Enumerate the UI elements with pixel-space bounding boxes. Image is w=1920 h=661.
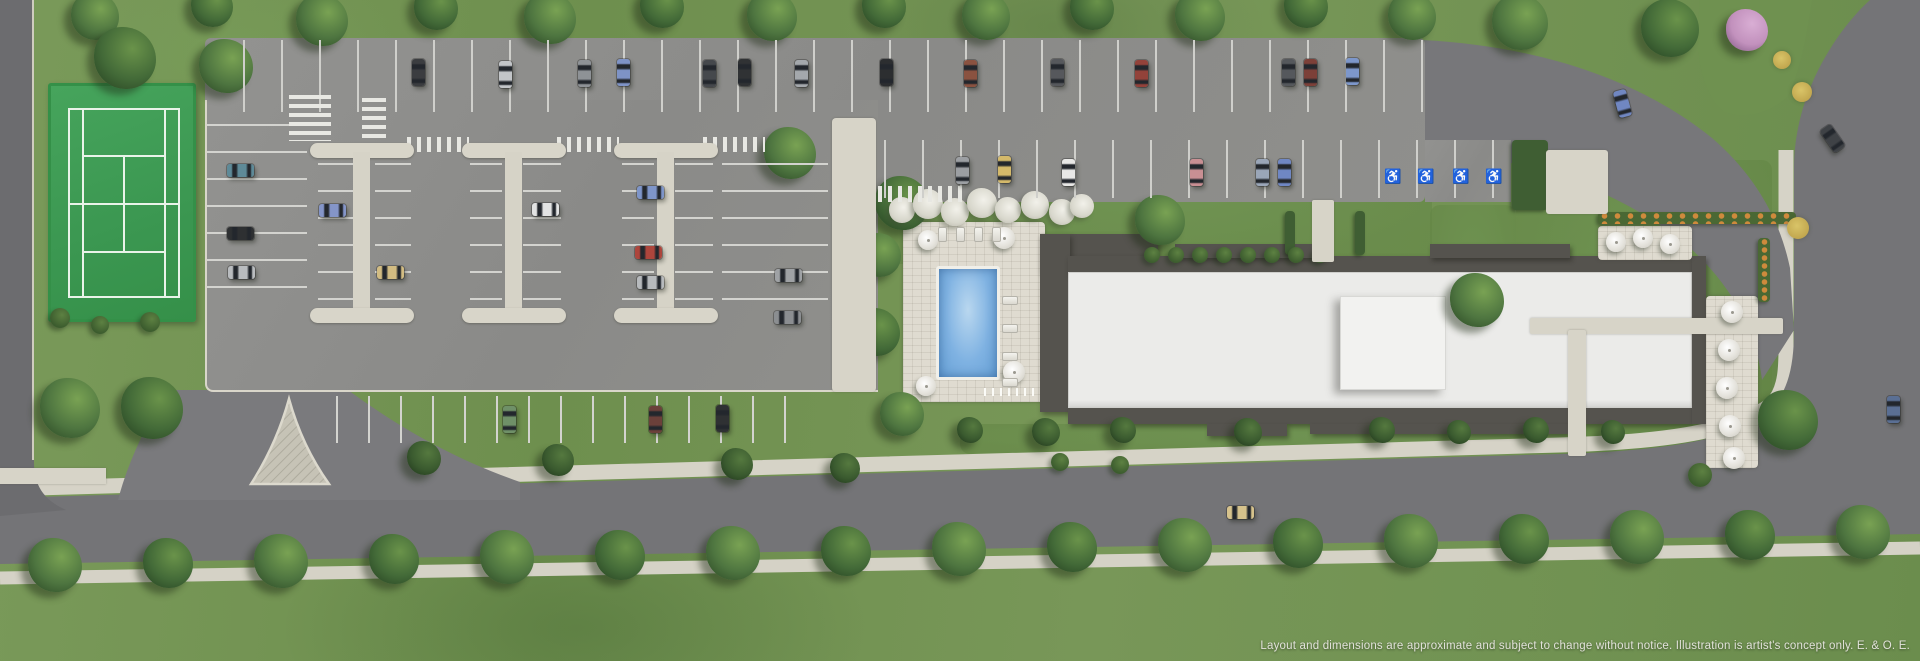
tree (962, 0, 1010, 40)
car (649, 406, 662, 433)
car (774, 311, 801, 324)
tree (480, 530, 534, 584)
parking-stall-lines (722, 163, 828, 309)
tree (1158, 518, 1212, 572)
pink-flowering-tree (1726, 9, 1768, 51)
car (880, 59, 893, 86)
tree (1447, 420, 1471, 444)
parking-island-stem (353, 152, 370, 310)
car (795, 60, 808, 87)
pool-lounger (1002, 324, 1018, 333)
tree (1047, 522, 1097, 572)
tree (191, 0, 233, 27)
car (1887, 396, 1900, 423)
white-flower-shrub (941, 198, 969, 226)
tree (721, 448, 753, 480)
bush (1216, 247, 1232, 263)
car (1135, 60, 1148, 87)
pool-lounger (938, 227, 947, 242)
patio-umbrella (1606, 232, 1626, 252)
pool-lounger (1002, 378, 1018, 387)
tree (254, 534, 308, 588)
tree (94, 27, 156, 89)
car (1282, 59, 1295, 86)
bush (1288, 247, 1304, 263)
tree (1284, 0, 1328, 28)
pool-lounger (992, 227, 1001, 242)
car (1051, 59, 1064, 86)
pool-lounger (1002, 296, 1018, 305)
car (1304, 59, 1317, 86)
pool-lounger (956, 227, 965, 242)
tree (1499, 514, 1549, 564)
handicap-parking-icon: ♿ (1384, 169, 1398, 183)
sprites-layer: ♿♿♿♿ (0, 0, 1920, 661)
patio-umbrella (1718, 339, 1740, 361)
tree (880, 392, 924, 436)
patio-umbrella (1723, 447, 1745, 469)
car (1819, 123, 1845, 153)
bush (1051, 453, 1069, 471)
tree (542, 444, 574, 476)
parking-stall-lines (470, 163, 502, 309)
car (412, 59, 425, 86)
tree (121, 377, 183, 439)
patio-umbrella (916, 376, 936, 396)
pool-lounger (1002, 352, 1018, 361)
car (532, 203, 559, 216)
car (964, 60, 977, 87)
crosswalk (557, 137, 619, 152)
tree (1523, 417, 1549, 443)
bush (91, 316, 109, 334)
bush (1688, 463, 1712, 487)
yellow-flower-bed (1773, 51, 1791, 69)
bush (1240, 247, 1256, 263)
car (1278, 159, 1291, 186)
patio-umbrella (1719, 415, 1741, 437)
disclaimer-text: Layout and dimensions are approximate an… (1260, 640, 1910, 652)
car (319, 204, 346, 217)
patio-umbrella (1633, 228, 1653, 248)
walkway (832, 118, 876, 392)
parking-island-cap (310, 308, 414, 323)
parking-stall-lines (675, 163, 713, 309)
tree (1641, 0, 1699, 57)
tree (640, 0, 684, 28)
tree (1175, 0, 1225, 41)
walkway (0, 468, 106, 484)
bush (1111, 456, 1129, 474)
parking-island-cap (462, 308, 566, 323)
car (228, 266, 255, 279)
patio-umbrella (1721, 301, 1743, 323)
tree (747, 0, 797, 41)
tree (1369, 417, 1395, 443)
parking-stall-lines (318, 163, 356, 309)
crosswalk (289, 95, 331, 141)
crosswalk (407, 137, 469, 152)
car (1256, 159, 1269, 186)
walkway (1312, 200, 1334, 262)
patio-umbrella (1660, 234, 1680, 254)
tree (821, 526, 871, 576)
bush (1168, 247, 1184, 263)
white-flower-shrub (995, 197, 1021, 223)
pool-lounger (974, 227, 983, 242)
car (956, 157, 969, 184)
walkway (1546, 150, 1608, 214)
car (1346, 58, 1359, 85)
tree (830, 453, 860, 483)
tree (1610, 510, 1664, 564)
tree (1836, 505, 1890, 559)
tree (957, 417, 983, 443)
tree (862, 0, 906, 28)
tree (932, 522, 986, 576)
tree (1135, 195, 1185, 245)
tree (1758, 390, 1818, 450)
car (227, 164, 254, 177)
parking-stall-lines (207, 124, 307, 304)
bush (1144, 247, 1160, 263)
tree (1450, 273, 1504, 327)
bush (1264, 247, 1280, 263)
tree (1492, 0, 1548, 50)
car (738, 59, 751, 86)
handicap-parking-icon: ♿ (1417, 169, 1431, 183)
car (637, 276, 664, 289)
walkway (1568, 330, 1586, 456)
tree (369, 534, 419, 584)
car (703, 60, 716, 87)
car (578, 60, 591, 87)
parking-stall-lines (523, 163, 561, 309)
tree (143, 538, 193, 588)
tree (1601, 420, 1625, 444)
bush (140, 312, 160, 332)
car (377, 266, 404, 279)
tree (524, 0, 576, 44)
parking-island-stem (505, 152, 522, 310)
crosswalk (878, 186, 962, 202)
patio-umbrella (1716, 377, 1738, 399)
parking-island-cap (614, 308, 718, 323)
tree (40, 378, 100, 438)
yellow-flower-bed (1787, 217, 1809, 239)
car (1190, 159, 1203, 186)
handicap-parking-icon: ♿ (1452, 169, 1466, 183)
tree (1384, 514, 1438, 568)
handicap-parking-icon: ♿ (1485, 169, 1499, 183)
car (227, 227, 254, 240)
car (1062, 159, 1075, 186)
tree (1725, 510, 1775, 560)
bush (50, 308, 70, 328)
tree (28, 538, 82, 592)
car (503, 406, 516, 433)
bush (1192, 247, 1208, 263)
tree (1388, 0, 1436, 40)
car (716, 405, 729, 432)
car (998, 156, 1011, 183)
car (1227, 506, 1254, 519)
tree (414, 0, 458, 30)
car (617, 59, 630, 86)
parking-stall-lines (375, 163, 411, 309)
tree (706, 526, 760, 580)
car (775, 269, 802, 282)
yellow-flower-bed (1792, 82, 1812, 102)
tree (595, 530, 645, 580)
car (1612, 88, 1632, 117)
tree (1234, 418, 1262, 446)
tree (407, 441, 441, 475)
tree (1032, 418, 1060, 446)
tree (1070, 0, 1114, 30)
car (635, 246, 662, 259)
car (499, 61, 512, 88)
patio-umbrella (918, 230, 938, 250)
car (637, 186, 664, 199)
site-plan-rendering: ♿♿♿♿ Layout and dimensions are approxima… (0, 0, 1920, 661)
crosswalk (362, 98, 386, 146)
tree (1110, 417, 1136, 443)
tree (1273, 518, 1323, 568)
